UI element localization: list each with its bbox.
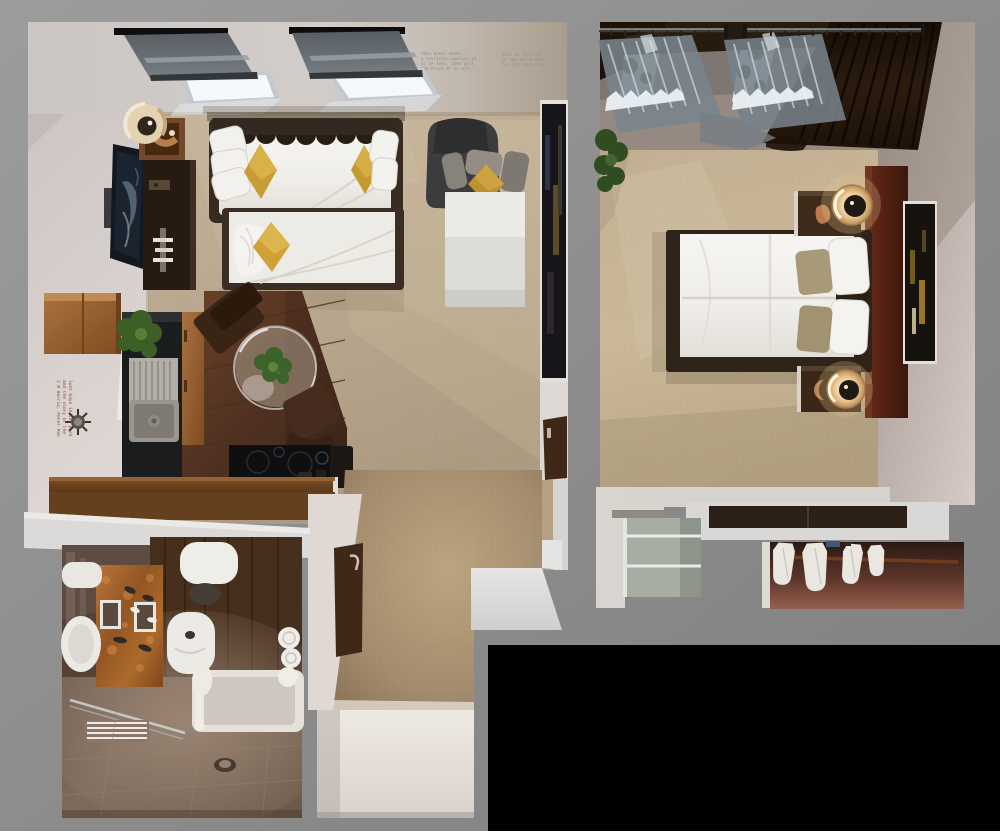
svg-text:to be seen, then well: to be seen, then well bbox=[421, 62, 474, 67]
svg-text:and the story of the: and the story of the bbox=[61, 380, 67, 434]
svg-text:more in this set: more in this set bbox=[502, 53, 543, 58]
svg-text:of the Suite and: of the Suite and bbox=[502, 58, 543, 63]
svg-text:lost boys in the park: lost boys in the park bbox=[67, 380, 73, 437]
svg-text:for the next stay: for the next stay bbox=[502, 63, 545, 68]
svg-text:J R Harris, Peter Pan: J R Harris, Peter Pan bbox=[55, 380, 61, 437]
svg-text:the Price of it all: the Price of it all bbox=[421, 67, 469, 72]
svg-text:Then Hotel Sweet...: Then Hotel Sweet... bbox=[421, 52, 469, 57]
svg-text:a Touristic quality in: a Touristic quality in bbox=[421, 57, 477, 62]
